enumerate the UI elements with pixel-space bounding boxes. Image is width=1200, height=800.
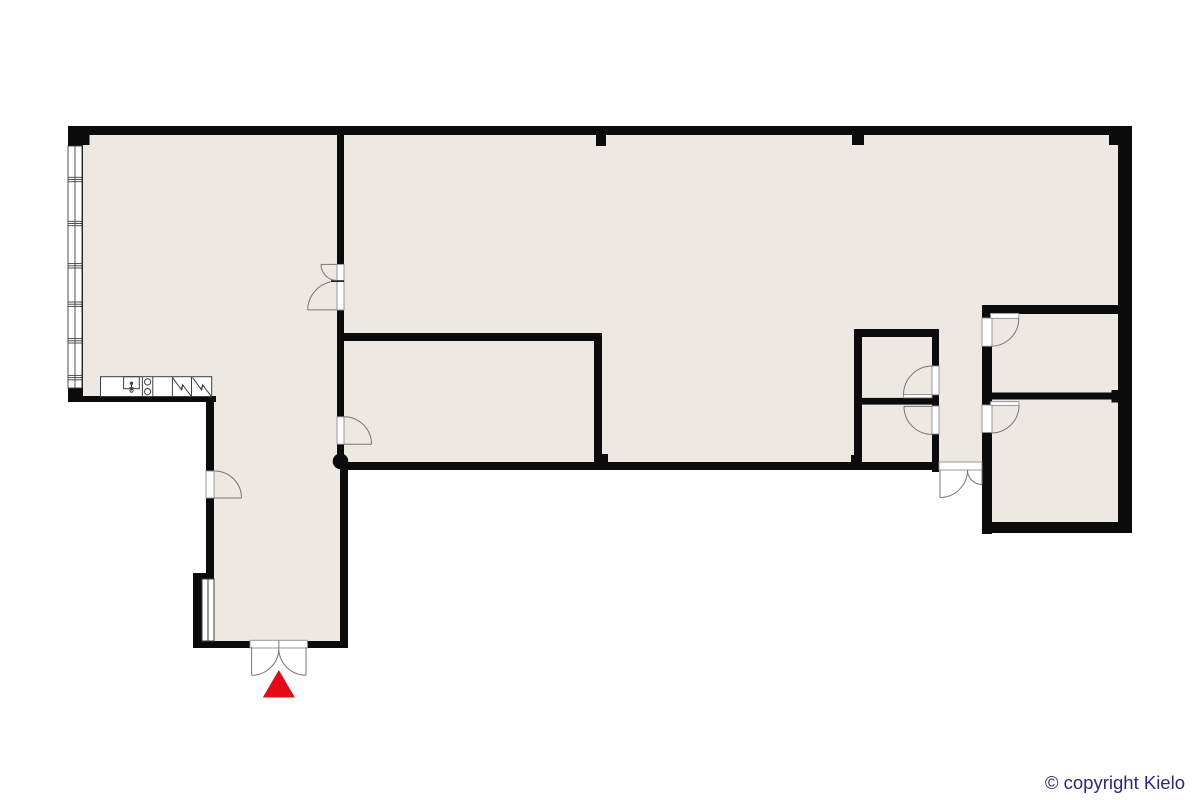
svg-text:© copyright Kielo: © copyright Kielo <box>1045 772 1185 793</box>
